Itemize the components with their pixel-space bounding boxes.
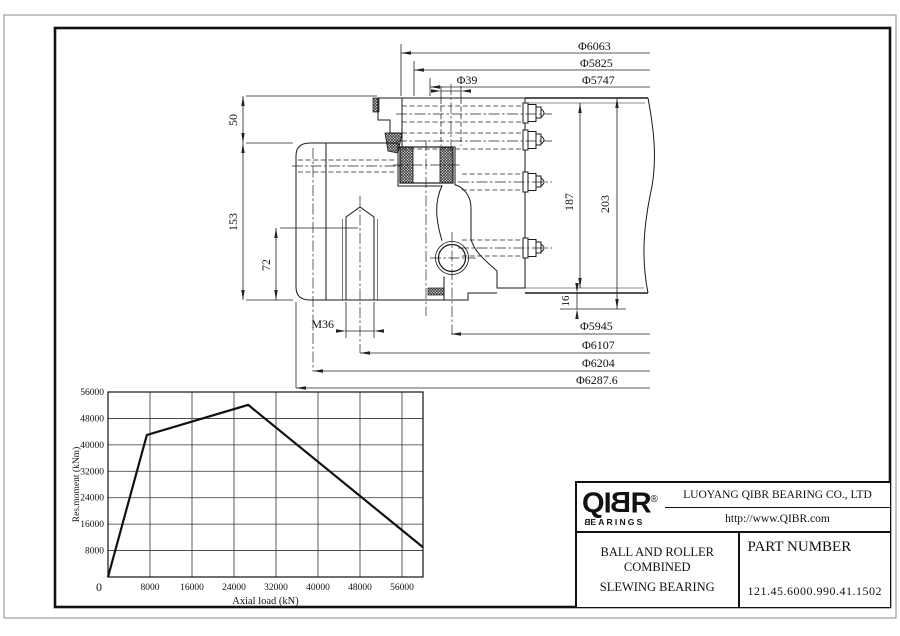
x-tick-label: 16000 xyxy=(180,583,204,593)
title-block-detail-row: BALL AND ROLLER COMBINED SLEWING BEARING… xyxy=(577,533,890,607)
dim-5825: Φ5825 xyxy=(580,56,613,70)
dim-6107: Φ6107 xyxy=(582,338,615,352)
seal-retainer xyxy=(373,98,402,153)
part-number-cell: PART NUMBER 121.45.6000.990.41.1502 xyxy=(740,533,891,607)
dim-m36: M36 xyxy=(311,317,334,331)
dim-6204: Φ6204 xyxy=(582,356,615,370)
x-tick-label: 56000 xyxy=(390,583,414,593)
y-axis-label: Res.moment (kNm) xyxy=(71,447,82,522)
break-line xyxy=(644,98,655,293)
logo: QIBR® BEARINGS xyxy=(577,483,665,531)
product-line2: SLEWING BEARING xyxy=(600,580,715,595)
dim-5747: Φ5747 xyxy=(582,73,615,87)
x-tick-label: 8000 xyxy=(141,583,160,593)
dim-153: 153 xyxy=(226,213,240,231)
load-capacity-chart: 8000160002400032000400004800056000800016… xyxy=(71,388,423,607)
title-block-header-row: QIBR® BEARINGS LUOYANG QIBR BEARING CO.,… xyxy=(577,483,890,533)
centerlines xyxy=(313,84,552,371)
x-tick-label: 40000 xyxy=(306,583,330,593)
bolts xyxy=(523,103,544,258)
lower-seal xyxy=(428,288,444,295)
mounting-plate xyxy=(525,98,654,293)
drawing-sheet: Φ6063 Φ5825 Φ5747 Φ39 50 153 72 xyxy=(0,0,900,636)
bolt xyxy=(523,130,544,150)
x-tick-label: 32000 xyxy=(264,583,288,593)
x-axis-label: Axial load (kN) xyxy=(232,596,299,607)
dim-39: Φ39 xyxy=(457,73,478,87)
bolt xyxy=(523,103,544,123)
y-tick-label: 24000 xyxy=(80,494,104,504)
origin-label: 0 xyxy=(96,580,102,594)
part-number-value: 121.45.6000.990.41.1502 xyxy=(748,584,883,599)
y-tick-label: 48000 xyxy=(80,414,104,424)
load-curve xyxy=(108,405,423,577)
product-line1: BALL AND ROLLER COMBINED xyxy=(579,545,736,575)
product-name: BALL AND ROLLER COMBINED SLEWING BEARING xyxy=(577,533,740,607)
x-tick-label: 48000 xyxy=(348,583,372,593)
dimensions: Φ6063 Φ5825 Φ5747 Φ39 50 153 72 xyxy=(226,39,650,390)
dim-6063: Φ6063 xyxy=(578,39,611,53)
part-number-label: PART NUMBER xyxy=(748,539,883,556)
dim-50: 50 xyxy=(226,114,240,126)
y-tick-label: 16000 xyxy=(80,520,104,530)
dim-16: 16 xyxy=(560,295,572,307)
dim-203: 203 xyxy=(598,195,612,213)
logo-wordmark: QIBR® xyxy=(582,487,665,517)
y-tick-label: 32000 xyxy=(80,467,104,477)
title-block: QIBR® BEARINGS LUOYANG QIBR BEARING CO.,… xyxy=(575,481,890,607)
company-name: LUOYANG QIBR BEARING CO., LTD xyxy=(665,483,890,508)
dim-5945: Φ5945 xyxy=(580,319,613,333)
y-tick-label: 8000 xyxy=(85,547,104,557)
y-tick-label: 40000 xyxy=(80,441,104,451)
x-tick-label: 24000 xyxy=(222,583,246,593)
y-tick-label: 56000 xyxy=(80,388,104,398)
company-url[interactable]: http://www.QIBR.com xyxy=(665,508,890,532)
dim-187: 187 xyxy=(562,193,576,211)
dim-72: 72 xyxy=(259,259,273,271)
company-info: LUOYANG QIBR BEARING CO., LTD http://www… xyxy=(665,483,890,531)
dim-6287: Φ6287.6 xyxy=(576,373,618,387)
registered-mark: ® xyxy=(651,494,658,505)
